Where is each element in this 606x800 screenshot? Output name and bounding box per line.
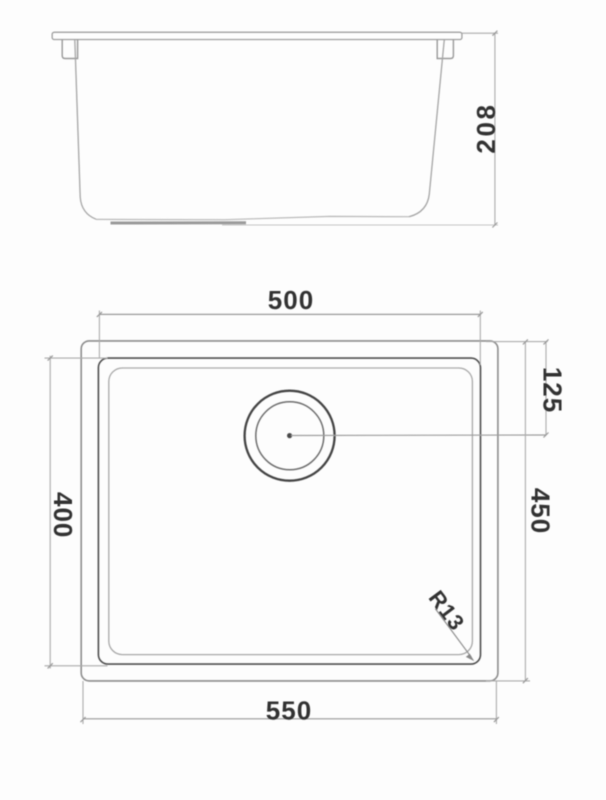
svg-text:400: 400: [48, 492, 78, 538]
svg-text:500: 500: [268, 285, 314, 315]
svg-text:550: 550: [266, 696, 312, 726]
svg-text:125: 125: [538, 367, 568, 413]
svg-text:450: 450: [526, 488, 556, 534]
svg-text:208: 208: [471, 102, 501, 153]
